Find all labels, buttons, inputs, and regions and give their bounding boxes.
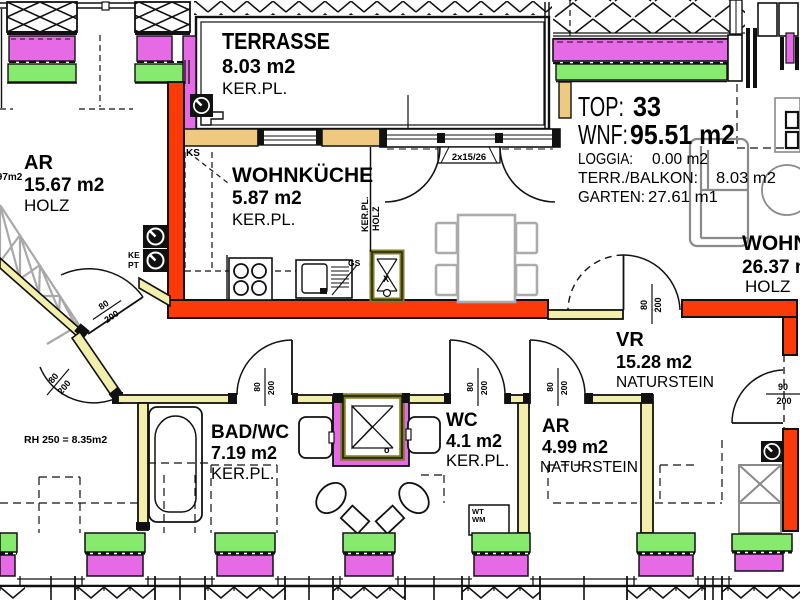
svg-text:15.28 m2: 15.28 m2 — [616, 352, 692, 372]
svg-text:4.99 m2: 4.99 m2 — [542, 437, 608, 457]
svg-text:200: 200 — [776, 396, 791, 406]
svg-text:TERR./BALKON:: TERR./BALKON: — [578, 170, 698, 187]
svg-text:8.03 m2: 8.03 m2 — [222, 56, 295, 78]
svg-text:0.00 m2: 0.00 m2 — [652, 151, 708, 168]
svg-text:5.87 m2: 5.87 m2 — [232, 188, 302, 209]
svg-text:BAD/WC: BAD/WC — [211, 422, 289, 443]
svg-text:WNF:: WNF: — [578, 119, 628, 150]
svg-text:2x15/26: 2x15/26 — [452, 152, 486, 163]
svg-text:WOHNEN: WOHNEN — [742, 232, 800, 255]
svg-text:HOLZ: HOLZ — [371, 206, 381, 231]
svg-text:KER.PL.: KER.PL. — [446, 452, 509, 470]
svg-text:HOLZ: HOLZ — [24, 196, 69, 215]
svg-text:7.19 m2: 7.19 m2 — [211, 443, 277, 463]
svg-text:.97m2: .97m2 — [0, 172, 23, 183]
svg-text:KS: KS — [186, 148, 200, 159]
svg-text:AR: AR — [24, 152, 53, 174]
svg-text:NATURSTEIN: NATURSTEIN — [540, 459, 638, 476]
svg-text:26.37 m2: 26.37 m2 — [742, 257, 800, 278]
svg-text:8.03 m2: 8.03 m2 — [716, 170, 776, 187]
svg-text:X: X — [383, 274, 389, 284]
svg-text:AR: AR — [542, 416, 570, 437]
svg-text:80: 80 — [465, 382, 475, 392]
svg-text:KER.PL.: KER.PL. — [222, 79, 287, 98]
svg-text:KE: KE — [128, 250, 140, 260]
svg-text:33: 33 — [633, 91, 661, 122]
svg-text:TOP:: TOP: — [578, 91, 624, 122]
svg-text:4.1 m2: 4.1 m2 — [446, 431, 502, 451]
svg-text:TERRASSE: TERRASSE — [222, 28, 330, 54]
svg-text:KER.PL.: KER.PL. — [360, 196, 370, 232]
svg-text:KER.PL.: KER.PL. — [211, 465, 274, 483]
svg-text:200: 200 — [266, 381, 276, 395]
svg-text:GARTEN:: GARTEN: — [578, 189, 645, 206]
svg-text:LOGGIA:: LOGGIA: — [578, 151, 633, 168]
svg-text:80: 80 — [252, 382, 262, 392]
svg-text:27.61 m1: 27.61 m1 — [648, 189, 718, 206]
svg-text:VR: VR — [616, 329, 644, 351]
svg-text:NATURSTEIN: NATURSTEIN — [616, 374, 714, 391]
svg-text:PT: PT — [128, 260, 140, 270]
svg-text:WM: WM — [472, 515, 485, 524]
svg-text:200: 200 — [559, 381, 569, 395]
svg-text:KER.PL.: KER.PL. — [232, 211, 295, 229]
svg-text:HOLZ: HOLZ — [745, 277, 790, 296]
svg-text:GS: GS — [348, 258, 361, 268]
svg-text:90: 90 — [778, 382, 788, 392]
svg-text:200: 200 — [479, 381, 489, 395]
svg-text:15.67 m2: 15.67 m2 — [24, 175, 104, 196]
svg-text:80: 80 — [545, 382, 555, 392]
svg-text:WC: WC — [446, 410, 478, 431]
svg-text:RH 250 = 8.35m2: RH 250 = 8.35m2 — [24, 434, 107, 446]
svg-text:80: 80 — [639, 300, 649, 310]
svg-text:95.51 m2: 95.51 m2 — [630, 119, 735, 150]
svg-text:200: 200 — [653, 297, 663, 312]
svg-text:WOHNKÜCHE: WOHNKÜCHE — [232, 164, 373, 187]
svg-text:o: o — [384, 445, 390, 455]
